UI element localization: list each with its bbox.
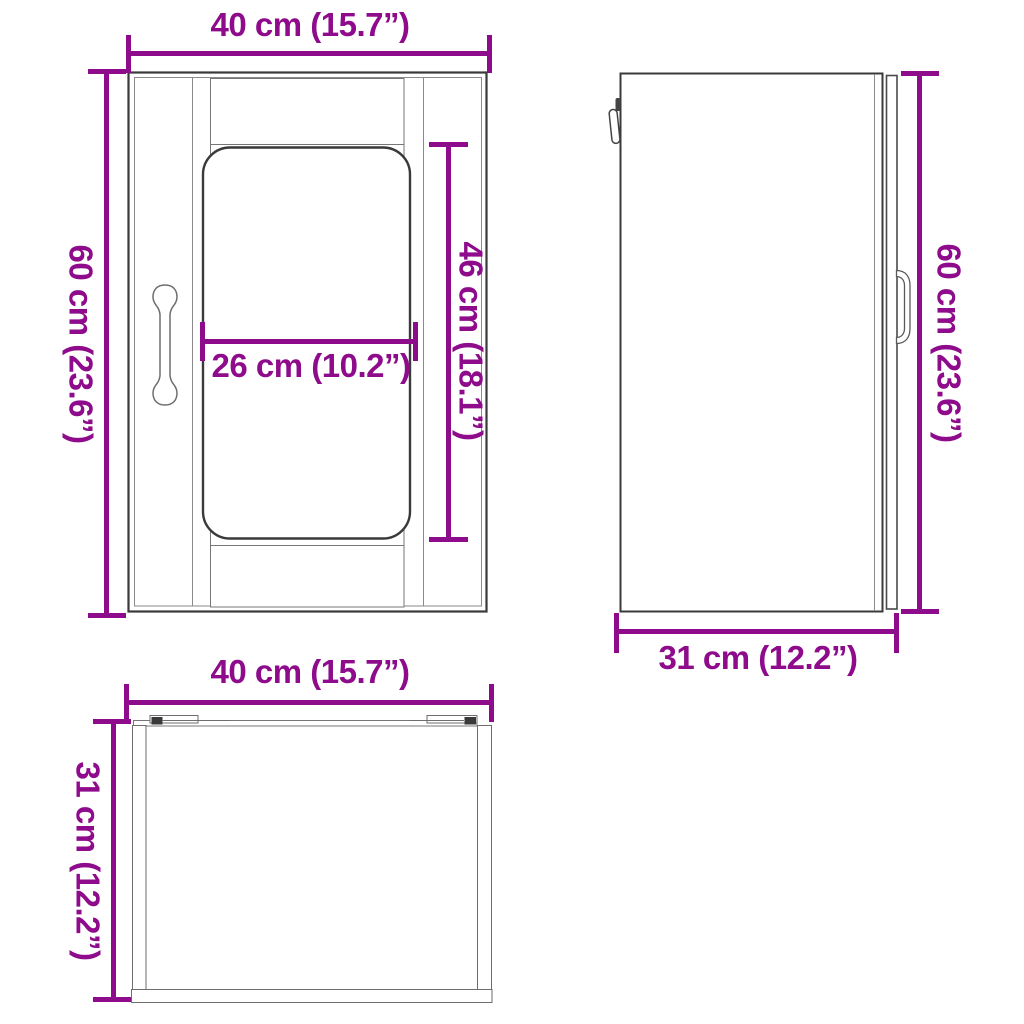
top-width-dim-end-right	[489, 684, 494, 722]
front-height-dim-line	[104, 70, 109, 618]
glass-width-dim-label: 26 cm (10.2”)	[212, 349, 411, 382]
glass-width-dim-end-right	[413, 322, 418, 361]
side-hinge-icon	[609, 98, 621, 144]
side-panel-left-top	[133, 726, 147, 990]
side-depth-dim-line	[616, 629, 899, 634]
side-handle-icon	[897, 271, 911, 344]
front-width-dim-label: 40 cm (15.7”)	[211, 8, 410, 41]
diagram-canvas: 40 cm (15.7”) 60 cm (23.6”) 26 cm (10.2”…	[0, 0, 1024, 1024]
front-height-dim-end-bottom	[88, 613, 126, 618]
front-width-dim-line	[128, 51, 492, 56]
top-depth-dim-line	[111, 720, 116, 1001]
side-depth-dim-label: 31 cm (12.2”)	[659, 641, 858, 674]
glass-height-dim-label: 46 cm (18.1”)	[455, 242, 488, 441]
top-width-dim-end-left	[124, 684, 129, 722]
top-depth-dim-end-bottom	[93, 997, 131, 1002]
glass-height-dim-line	[446, 144, 451, 540]
front-height-dim-label: 60 cm (23.6”)	[65, 245, 98, 444]
front-width-dim-end-right	[487, 35, 492, 73]
side-depth-dim-end-left	[614, 613, 619, 653]
front-height-dim-end-top	[88, 69, 126, 74]
side-height-dim-line	[917, 73, 922, 613]
line-art-layer	[0, 0, 1024, 1024]
glass-width-dim-end-left	[200, 322, 205, 361]
front-width-dim-end-left	[126, 35, 131, 73]
top-view-drawing	[132, 716, 493, 1003]
top-depth-dim-label: 31 cm (12.2”)	[72, 762, 105, 961]
side-height-dim-label: 60 cm (23.6”)	[933, 244, 966, 443]
back-panel-top	[132, 990, 493, 1003]
top-width-dim-label: 40 cm (15.7”)	[211, 655, 410, 688]
door-panel-side	[887, 76, 898, 610]
side-height-dim-end-bottom	[901, 609, 939, 614]
top-depth-dim-end-top	[93, 719, 131, 724]
side-panel-right-top	[478, 726, 492, 990]
side-depth-dim-end-right	[894, 613, 899, 653]
top-width-dim-line	[126, 700, 492, 705]
side-view-drawing	[609, 74, 910, 612]
glass-height-dim-end-bottom	[429, 537, 468, 542]
glass-width-dim-line	[202, 339, 418, 344]
cabinet-body-side	[621, 74, 883, 612]
glass-height-dim-end-top	[429, 142, 468, 147]
side-height-dim-end-top	[901, 71, 939, 76]
